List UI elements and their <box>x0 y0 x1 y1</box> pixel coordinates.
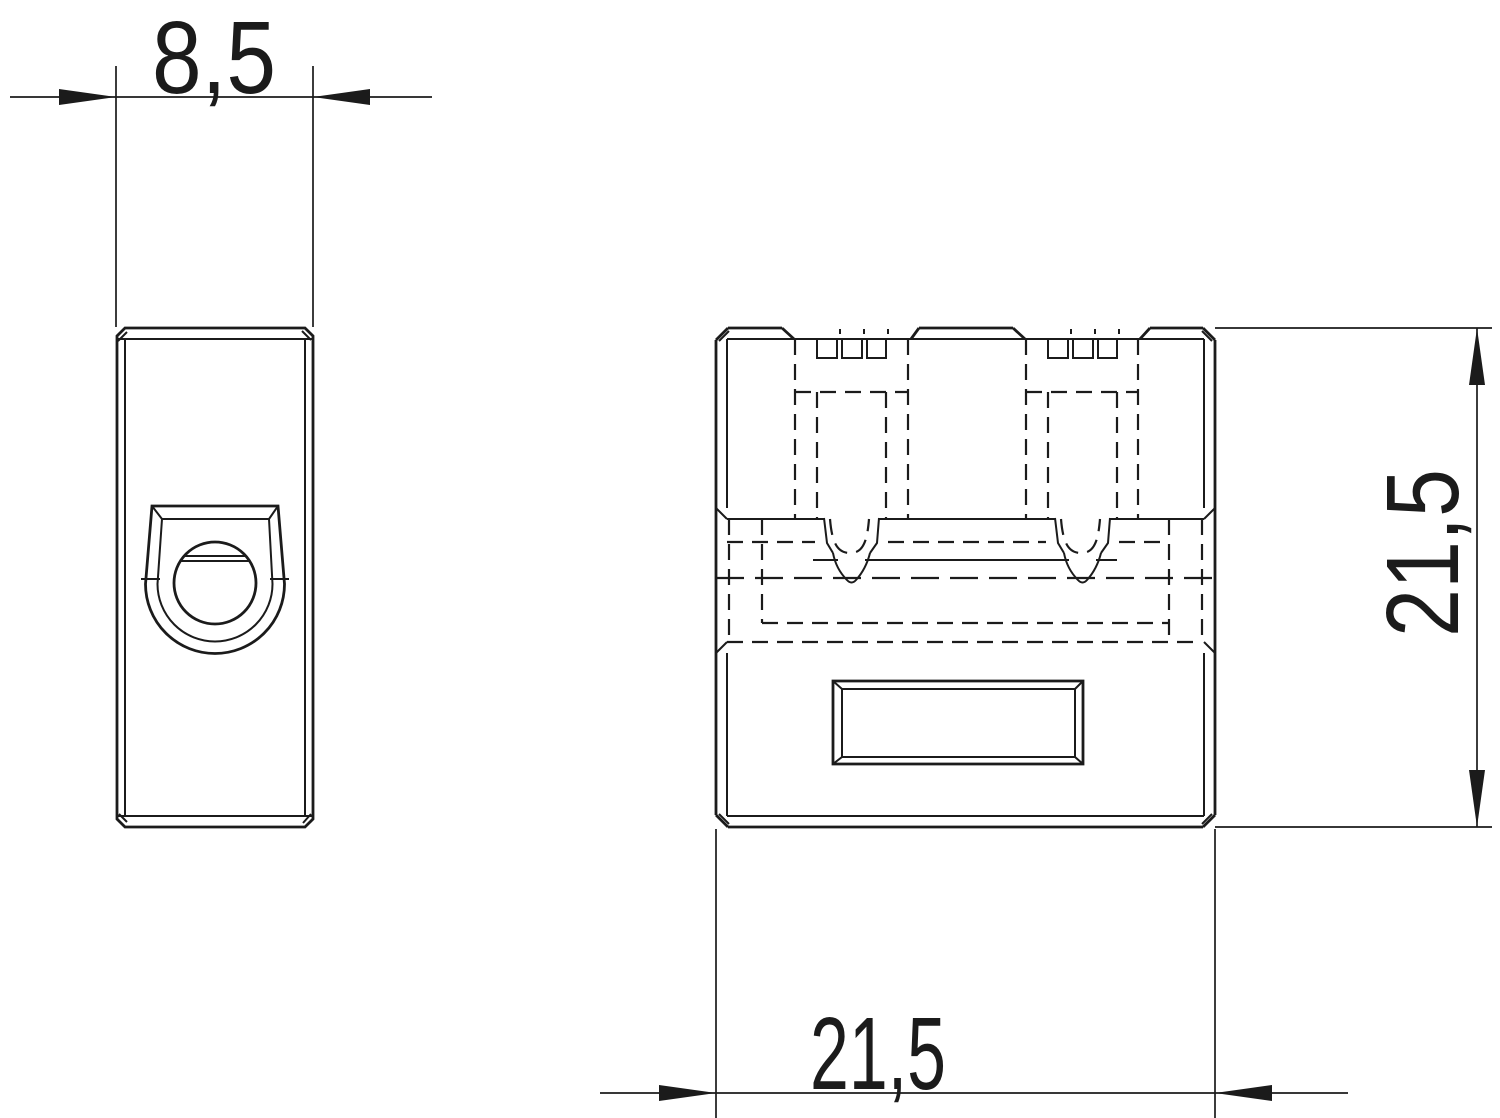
clip-outer-profile <box>146 506 285 654</box>
hidden-lines <box>716 329 1215 642</box>
tooth-tip-dashes <box>840 329 1119 338</box>
bottom-arrow-right <box>1215 1085 1272 1101</box>
side-view <box>117 328 313 827</box>
slot-corner-bevels <box>833 681 1083 764</box>
bottom-dimension-label: 21,5 <box>810 996 946 1111</box>
clip-circle <box>174 542 256 624</box>
top-arrow-right <box>313 89 370 105</box>
comb-teeth-left <box>817 339 886 358</box>
front-view <box>716 328 1215 827</box>
technical-drawing-canvas: 8,5 21,5 21,5 <box>0 0 1500 1118</box>
claw-left <box>824 518 879 583</box>
dimension-right-height: 21,5 <box>1215 328 1492 827</box>
dimension-top-width: 8,5 <box>10 0 432 327</box>
drawing-svg: 8,5 21,5 21,5 <box>0 0 1500 1118</box>
waist-transition-diagonals <box>716 508 1215 653</box>
right-arrow-bottom <box>1469 770 1485 827</box>
right-dimension-label: 21,5 <box>1365 469 1480 637</box>
top-dimension-label: 8,5 <box>152 0 276 115</box>
bottom-extension-lines <box>716 829 1215 1118</box>
slot-inner <box>842 689 1075 757</box>
top-arrow-left <box>59 89 116 105</box>
bottom-arrow-left <box>659 1085 716 1101</box>
slot-outer <box>833 681 1083 764</box>
clip-circle-chords <box>181 556 250 561</box>
claw-right <box>1055 518 1110 583</box>
band-hidden-horizontals <box>727 542 1202 642</box>
dimension-bottom-width: 21,5 <box>600 829 1348 1118</box>
right-arrow-top <box>1469 328 1485 385</box>
channel-inner-walls <box>817 392 1117 518</box>
channel-outer-walls <box>795 339 1138 518</box>
comb-teeth-right <box>1048 339 1117 358</box>
claw-hidden-arcs <box>830 519 1100 553</box>
clip-bevel-diagonals <box>152 506 278 519</box>
